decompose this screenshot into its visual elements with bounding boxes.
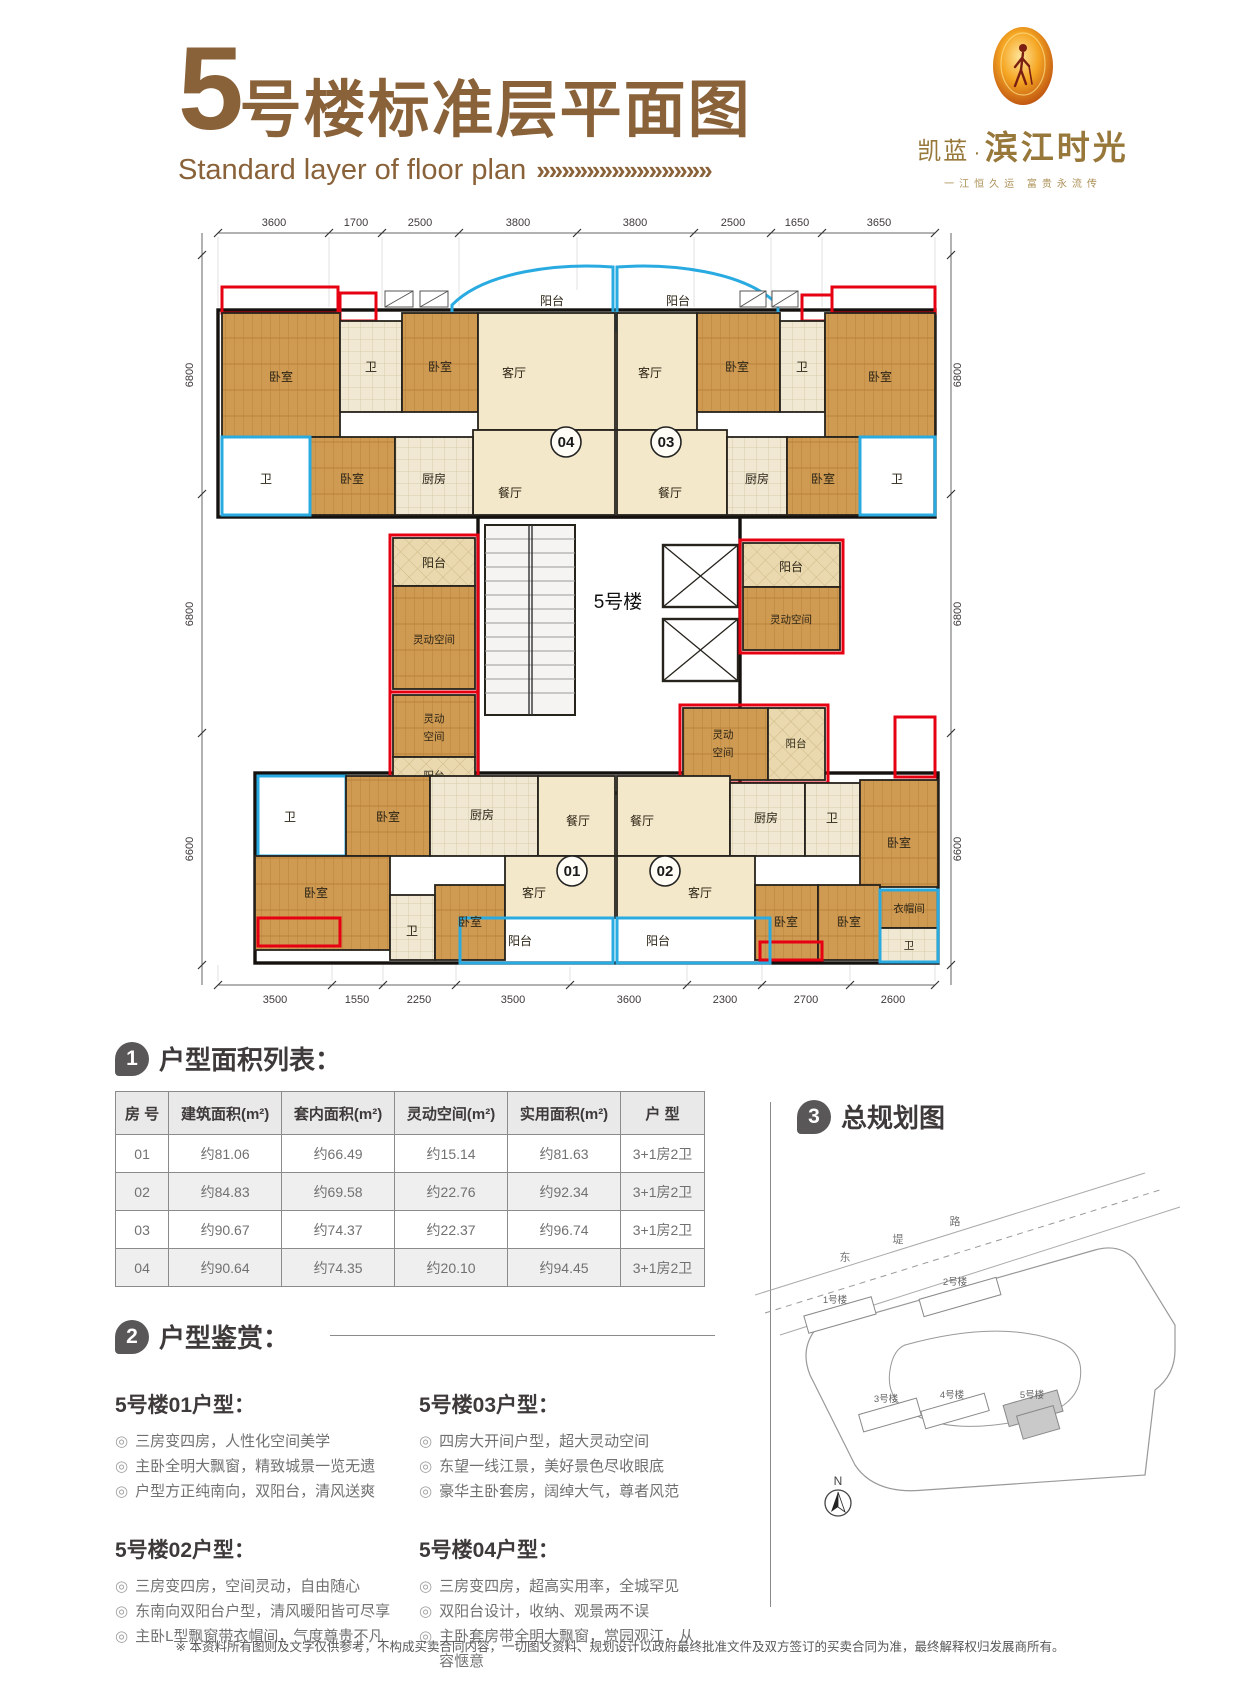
dimension-labels-top: 3600 1700 2500 3800 3800 2500 1650 3650 xyxy=(262,217,891,229)
title-text: 号楼标准层平面图 xyxy=(240,80,752,142)
unit-area-table: 房 号 建筑面积(m²) 套内面积(m²) 灵动空间(m²) 实用面积(m²) … xyxy=(115,1091,705,1287)
gem-body xyxy=(993,27,1053,105)
room-label-flex-2: 空间 xyxy=(713,746,734,759)
dim-label: 2600 xyxy=(881,994,905,1006)
flex-unit02: 灵动 空间 阳台 xyxy=(680,705,828,783)
room-label-bedroom: 卧室 xyxy=(887,835,911,850)
dim-label: 6800 xyxy=(952,363,964,387)
dimension-labels-left: 6800 6800 6600 xyxy=(184,363,196,861)
room-label-bath: 卫 xyxy=(891,472,903,486)
room-label-bath: 卫 xyxy=(796,360,808,374)
review-unit-title: 5号楼02户型： xyxy=(115,1534,405,1564)
section1-header: 1 户型面积列表： xyxy=(115,1040,705,1077)
room-label-bedroom: 卧室 xyxy=(376,809,400,824)
cell: 约94.45 xyxy=(508,1249,621,1287)
floor-plan: 3600 1700 2500 3800 3800 2500 1650 3650 … xyxy=(180,195,970,1025)
room-label-bath: 卫 xyxy=(365,360,377,374)
dim-label: 1550 xyxy=(345,994,369,1006)
review-item: ◎三房变四房，超高实用率，全城罕见 xyxy=(419,1574,709,1599)
room-label-cloakroom: 衣帽间 xyxy=(893,902,925,915)
site-plan-svg: 东 堤 路 1号楼 2号楼 3号楼 4号楼 5号楼 N xyxy=(755,1145,1185,1545)
review-item-text: 户型方正纯南向，双阳台，清风送爽 xyxy=(135,1479,375,1504)
room-label-living: 客厅 xyxy=(638,365,662,380)
dim-label: 2500 xyxy=(408,217,432,229)
room-label-dining: 餐厅 xyxy=(630,813,654,828)
bullet-icon: ◎ xyxy=(419,1479,432,1504)
review-item: ◎主卧全明大飘窗，精致城景一览无遗 xyxy=(115,1454,405,1479)
north-label: N xyxy=(834,1474,843,1488)
review-unit-02: 5号楼02户型： ◎三房变四房，空间灵动，自由随心 ◎东南向双阳台户型，清风暖阳… xyxy=(115,1534,405,1649)
room-label-bedroom: 卧室 xyxy=(340,471,364,486)
review-item-text: 东南向双阳台户型，清风暖阳皆可尽享 xyxy=(135,1599,390,1624)
review-item: ◎四房大开间户型，超大灵动空间 xyxy=(419,1429,709,1454)
subtitle-text: Standard layer of floor plan xyxy=(178,154,526,187)
room-label-flex-1: 灵动 xyxy=(424,713,445,725)
bullet-icon: ◎ xyxy=(419,1574,432,1599)
review-item-text: 主卧全明大飘窗，精致城景一览无遗 xyxy=(135,1454,375,1479)
room-label-kitchen: 厨房 xyxy=(422,471,446,486)
cell: 约81.06 xyxy=(169,1135,282,1173)
room-label-balcony: 阳台 xyxy=(540,293,564,308)
site-plan: 东 堤 路 1号楼 2号楼 3号楼 4号楼 5号楼 N xyxy=(755,1145,1185,1550)
unit-number-03: 03 xyxy=(658,434,675,451)
cell: 01 xyxy=(116,1135,169,1173)
dim-label: 3600 xyxy=(617,994,641,1006)
cell: 约22.37 xyxy=(395,1211,508,1249)
dim-label: 3500 xyxy=(263,994,287,1006)
room-label-bedroom: 卧室 xyxy=(428,359,452,374)
room-label-balcony: 阳台 xyxy=(422,555,446,570)
cell: 3+1房2卫 xyxy=(621,1249,705,1287)
building-label: 1号楼 xyxy=(823,1294,848,1306)
review-unit-title: 5号楼03户型： xyxy=(419,1389,709,1419)
review-item: ◎东南向双阳台户型，清风暖阳皆可尽享 xyxy=(115,1599,405,1624)
section1-title: 户型面积列表： xyxy=(159,1040,341,1077)
review-item-text: 三房变四房，超高实用率，全城罕见 xyxy=(439,1574,679,1599)
review-unit-title: 5号楼04户型： xyxy=(419,1534,709,1564)
building-label: 2号楼 xyxy=(943,1276,968,1288)
title-building-number: 5 xyxy=(178,30,240,148)
room-label-flex: 灵动空间 xyxy=(770,613,812,626)
dim-label: 6600 xyxy=(184,837,196,861)
room-label-flex-2: 空间 xyxy=(424,730,445,743)
dim-label: 3800 xyxy=(623,217,647,229)
review-item-text: 四房大开间户型，超大灵动空间 xyxy=(439,1429,649,1454)
unit-03: 客厅 卧室 卫 卧室 餐厅 厨房 卧室 卫 03 xyxy=(617,287,935,515)
review-item: ◎双阳台设计，收纳、观景两不误 xyxy=(419,1599,709,1624)
bullet-icon: ◎ xyxy=(115,1429,128,1454)
room-label-bedroom: 卧室 xyxy=(269,369,293,384)
room-label-flex: 灵动空间 xyxy=(413,633,455,646)
room-label-kitchen: 厨房 xyxy=(470,807,494,822)
dim-label: 6800 xyxy=(184,602,196,626)
review-item-text: 双阳台设计，收纳、观景两不误 xyxy=(439,1599,649,1624)
unit-number-04: 04 xyxy=(558,434,575,451)
cell: 02 xyxy=(116,1173,169,1211)
cell: 3+1房2卫 xyxy=(621,1211,705,1249)
room-label-balcony: 阳台 xyxy=(508,933,532,948)
cell: 约81.63 xyxy=(508,1135,621,1173)
room-label-bath: 卫 xyxy=(826,811,838,825)
brand-dot: · xyxy=(974,142,981,164)
disclaimer: ※ 本资料所有图则及文字仅供参考，不构成买卖合同内容，一切图文资料、规划设计以政… xyxy=(0,1636,1240,1655)
section3-header: 3 总规划图 xyxy=(797,1098,945,1135)
table-row: 03 约90.67 约74.37 约22.37 约96.74 3+1房2卫 xyxy=(116,1211,705,1249)
room-label-bath: 卫 xyxy=(260,472,272,486)
section2-badge: 2 xyxy=(115,1320,149,1354)
bay-window-02-top xyxy=(895,717,935,777)
col-header-layout: 户 型 xyxy=(621,1092,705,1135)
room-master-bedroom-02 xyxy=(860,780,938,887)
road-name-char: 路 xyxy=(950,1215,961,1228)
section2-rule xyxy=(330,1335,715,1336)
dimension-strip-left xyxy=(198,233,206,985)
col-header-room-no: 房 号 xyxy=(116,1092,169,1135)
cell: 3+1房2卫 xyxy=(621,1135,705,1173)
room-label-balcony: 阳台 xyxy=(779,559,803,574)
room-label-bedroom: 卧室 xyxy=(837,914,861,929)
dim-label: 2700 xyxy=(794,994,818,1006)
review-unit-title: 5号楼01户型： xyxy=(115,1389,405,1419)
room-living-04 xyxy=(478,313,615,430)
building-core-label: 5号楼 xyxy=(594,591,643,613)
bullet-icon: ◎ xyxy=(115,1479,128,1504)
dim-label: 6800 xyxy=(184,363,196,387)
room-label-living: 客厅 xyxy=(688,885,712,900)
room-label-balcony: 阳台 xyxy=(666,293,690,308)
table-row: 02 约84.83 约69.58 约22.76 约92.34 3+1房2卫 xyxy=(116,1173,705,1211)
brand-name: 凯蓝 · 滨江时光 xyxy=(868,121,1178,169)
review-item: ◎户型方正纯南向，双阳台，清风送爽 xyxy=(115,1479,405,1504)
review-item-text: 三房变四房，空间灵动，自由随心 xyxy=(135,1574,360,1599)
room-label-balcony: 阳台 xyxy=(786,737,807,750)
bullet-icon: ◎ xyxy=(115,1574,128,1599)
flex-right-upper: 阳台 灵动空间 xyxy=(740,540,843,653)
table-row: 01 约81.06 约66.49 约15.14 约81.63 3+1房2卫 xyxy=(116,1135,705,1173)
room-label-living: 客厅 xyxy=(522,885,546,900)
table-row: 04 约90.64 约74.35 约20.10 约94.45 3+1房2卫 xyxy=(116,1249,705,1287)
room-label-balcony: 阳台 xyxy=(646,933,670,948)
room-label-bath: 卫 xyxy=(904,940,915,952)
section1-badge: 1 xyxy=(115,1042,149,1076)
col-header-gross-area: 建筑面积(m²) xyxy=(169,1092,282,1135)
col-header-flex-area: 灵动空间(m²) xyxy=(395,1092,508,1135)
cell: 约92.34 xyxy=(508,1173,621,1211)
section-review: 2 户型鉴赏： 5号楼01户型： ◎三房变四房，人性化空间美学 ◎主卧全明大飘窗… xyxy=(115,1318,715,1683)
balcony-bottom-right xyxy=(617,918,770,963)
col-header-usable-area: 实用面积(m²) xyxy=(508,1092,621,1135)
review-item: ◎三房变四房，空间灵动，自由随心 xyxy=(115,1574,405,1599)
col-header-inner-area: 套内面积(m²) xyxy=(282,1092,395,1135)
stairwell xyxy=(485,525,575,715)
unit-number-02: 02 xyxy=(657,863,674,880)
review-item: ◎三房变四房，人性化空间美学 xyxy=(115,1429,405,1454)
dim-label: 2500 xyxy=(721,217,745,229)
cell: 约15.14 xyxy=(395,1135,508,1173)
cell: 3+1房2卫 xyxy=(621,1173,705,1211)
brand-tagline: 一江恒久运 富贵永流传 xyxy=(868,175,1178,190)
cell: 约20.10 xyxy=(395,1249,508,1287)
section-area-table: 1 户型面积列表： 房 号 建筑面积(m²) 套内面积(m²) 灵动空间(m²)… xyxy=(115,1040,705,1287)
north-arrow-icon: N xyxy=(825,1474,851,1516)
dimension-strip-bottom xyxy=(214,965,939,989)
dim-label: 6800 xyxy=(952,602,964,626)
cell: 约66.49 xyxy=(282,1135,395,1173)
table-header-row: 房 号 建筑面积(m²) 套内面积(m²) 灵动空间(m²) 实用面积(m²) … xyxy=(116,1092,705,1135)
room-label-bedroom: 卧室 xyxy=(774,914,798,929)
dim-label: 2300 xyxy=(713,994,737,1006)
room-label-flex-1: 灵动 xyxy=(713,729,734,741)
dimension-labels-bottom: 3500 1550 2250 3500 3600 2300 2700 2600 xyxy=(263,994,905,1006)
review-unit-03: 5号楼03户型： ◎四房大开间户型，超大灵动空间 ◎东望一线江景，美好景色尽收眼… xyxy=(419,1389,709,1504)
cell: 约84.83 xyxy=(169,1173,282,1211)
dim-label: 3650 xyxy=(867,217,891,229)
review-item-text: 三房变四房，人性化空间美学 xyxy=(135,1429,330,1454)
cell: 约74.35 xyxy=(282,1249,395,1287)
room-living-02 xyxy=(617,856,755,918)
road xyxy=(755,1173,1180,1335)
review-item-text: 东望一线江景，美好景色尽收眼底 xyxy=(439,1454,664,1479)
room-label-kitchen: 厨房 xyxy=(754,810,778,825)
room-label-bedroom: 卧室 xyxy=(725,359,749,374)
dim-label: 3600 xyxy=(262,217,286,229)
room-label-kitchen: 厨房 xyxy=(745,471,769,486)
section3-title: 总规划图 xyxy=(841,1098,945,1135)
section3-badge: 3 xyxy=(797,1100,831,1134)
review-item: ◎豪华主卧套房，阔绰大气，尊者风范 xyxy=(419,1479,709,1504)
cell: 约96.74 xyxy=(508,1211,621,1249)
room-master-bedroom-01 xyxy=(255,856,390,950)
dimension-labels-right: 6800 6800 6600 xyxy=(952,363,964,861)
cell: 约90.67 xyxy=(169,1211,282,1249)
bullet-icon: ◎ xyxy=(115,1454,128,1479)
bullet-icon: ◎ xyxy=(115,1599,128,1624)
cell: 约22.76 xyxy=(395,1173,508,1211)
page-subtitle: Standard layer of floor plan »»»»»»»»»»»… xyxy=(178,154,752,187)
bullet-icon: ◎ xyxy=(419,1429,432,1454)
road-name-char: 东 xyxy=(840,1251,851,1264)
room-label-living: 客厅 xyxy=(502,365,526,380)
room-label-bedroom: 卧室 xyxy=(868,369,892,384)
bay-box-04 xyxy=(340,293,376,321)
brand-name-small: 凯蓝 xyxy=(917,138,969,165)
dim-label: 2250 xyxy=(407,994,431,1006)
brand-name-large: 滨江时光 xyxy=(985,129,1129,166)
flex-left-upper: 阳台 灵动空间 xyxy=(390,535,478,692)
section2-title: 户型鉴赏： xyxy=(159,1318,289,1355)
brand-logo: 凯蓝 · 滨江时光 一江恒久运 富贵永流传 xyxy=(868,20,1178,190)
dim-label: 1650 xyxy=(785,217,809,229)
cell: 约90.64 xyxy=(169,1249,282,1287)
building-label: 3号楼 xyxy=(874,1393,899,1405)
room-label-bath: 卫 xyxy=(406,924,418,938)
room-label-dining: 餐厅 xyxy=(658,485,682,500)
section2-header: 2 户型鉴赏： xyxy=(115,1318,715,1355)
chevrons-icon: »»»»»»»»»»»»»» xyxy=(536,155,710,186)
dim-label: 1700 xyxy=(344,217,368,229)
cell: 04 xyxy=(116,1249,169,1287)
amber-gem-icon xyxy=(985,20,1061,112)
unit-01: 卫 卧室 厨房 餐厅 卧室 卫 卧室 客厅 阳台 01 xyxy=(255,776,615,963)
dim-label: 3800 xyxy=(506,217,530,229)
review-unit-01: 5号楼01户型： ◎三房变四房，人性化空间美学 ◎主卧全明大飘窗，精致城景一览无… xyxy=(115,1389,405,1504)
road-name-char: 堤 xyxy=(893,1233,904,1246)
floor-plan-svg: 3600 1700 2500 3800 3800 2500 1650 3650 … xyxy=(180,195,970,1020)
room-label-dining: 餐厅 xyxy=(566,813,590,828)
dim-label: 3500 xyxy=(501,994,525,1006)
room-label-bath: 卫 xyxy=(284,810,296,824)
cell: 约74.37 xyxy=(282,1211,395,1249)
room-label-dining: 餐厅 xyxy=(498,485,522,500)
page: 5 号楼标准层平面图 Standard layer of floor plan … xyxy=(0,0,1240,1683)
bullet-icon: ◎ xyxy=(419,1454,432,1479)
building-label: 5号楼 xyxy=(1020,1389,1045,1401)
room-label-bedroom: 卧室 xyxy=(304,885,328,900)
room-label-bedroom: 卧室 xyxy=(458,914,482,929)
unit-04: 卧室 卫 卧室 客厅 餐厅 卧室 厨房 卫 04 xyxy=(222,287,615,515)
page-title: 5 号楼标准层平面图 Standard layer of floor plan … xyxy=(178,30,752,187)
unit-number-01: 01 xyxy=(564,863,581,880)
cell: 约69.58 xyxy=(282,1173,395,1211)
dim-label: 6600 xyxy=(952,837,964,861)
cell: 03 xyxy=(116,1211,169,1249)
bullet-icon: ◎ xyxy=(419,1599,432,1624)
elevators xyxy=(663,545,738,681)
room-label-bedroom: 卧室 xyxy=(811,471,835,486)
room-bath-01 xyxy=(258,776,346,856)
ac-platform-icons xyxy=(385,291,798,307)
building-label: 4号楼 xyxy=(940,1389,965,1401)
review-item-text: 豪华主卧套房，阔绰大气，尊者风范 xyxy=(439,1479,679,1504)
page-title-row: 5 号楼标准层平面图 xyxy=(178,30,752,148)
review-item: ◎东望一线江景，美好景色尽收眼底 xyxy=(419,1454,709,1479)
room-dining-04 xyxy=(473,430,615,515)
